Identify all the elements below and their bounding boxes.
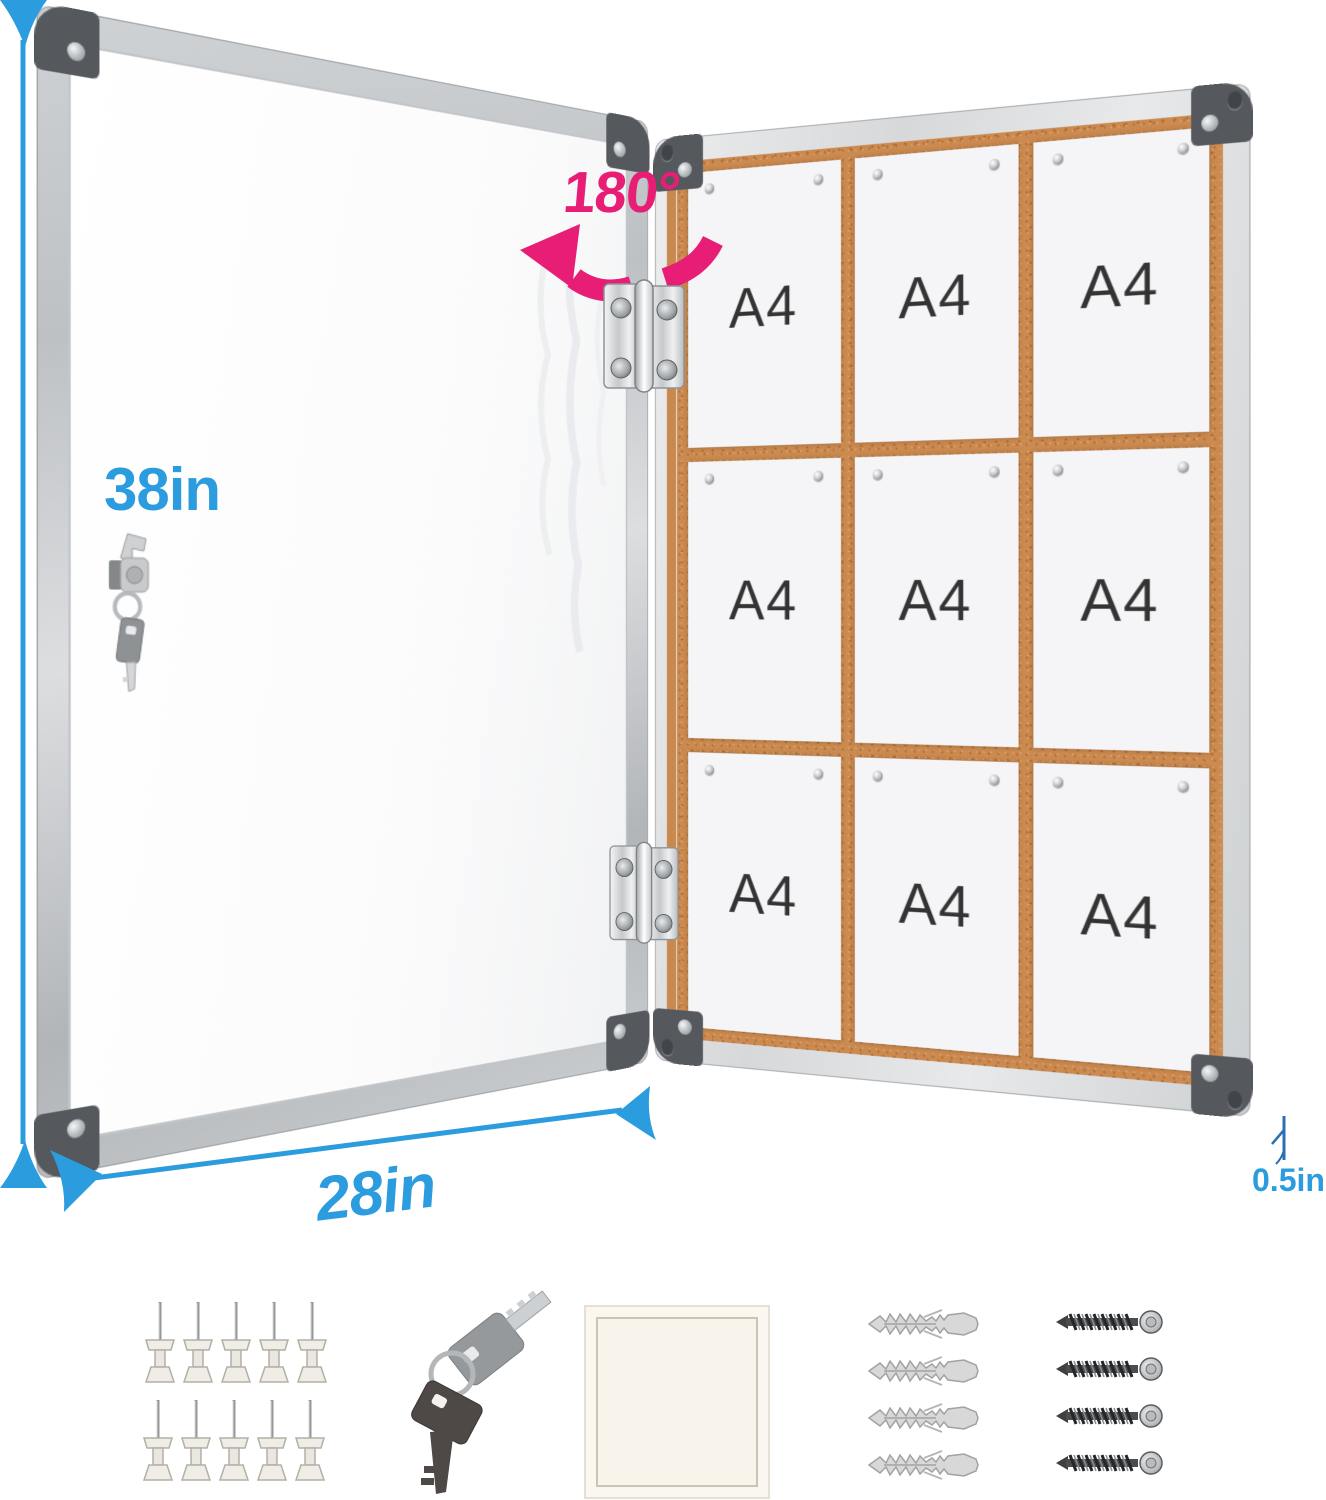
a4-label: A4 xyxy=(1080,247,1160,323)
a4-label: A4 xyxy=(729,859,798,930)
depth-tick xyxy=(1272,1116,1284,1164)
a4-paper: A4 xyxy=(1033,448,1209,753)
corner-cap xyxy=(1191,1054,1253,1120)
a4-paper: A4 xyxy=(688,458,841,742)
rivet-icon xyxy=(614,141,626,158)
a4-label: A4 xyxy=(899,259,973,332)
rotation-label: 180° xyxy=(561,164,682,222)
cork-side-edge xyxy=(667,182,676,1018)
corner-cap xyxy=(34,1104,99,1183)
cork-surface: A4 A4 A4 A4 A4 A4 A4 A4 A4 xyxy=(677,112,1223,1087)
lock-icon xyxy=(104,531,160,697)
bulletin-board: A4 A4 A4 A4 A4 A4 A4 A4 A4 xyxy=(655,83,1251,1117)
rivet-icon xyxy=(614,1023,626,1040)
mount-hole-icon xyxy=(1228,91,1243,110)
a4-paper: A4 xyxy=(688,752,841,1041)
mount-hole-icon xyxy=(1228,1090,1243,1109)
a4-paper: A4 xyxy=(688,160,841,449)
a4-paper: A4 xyxy=(855,453,1019,747)
a4-label: A4 xyxy=(729,567,798,634)
mount-hole-icon xyxy=(661,1039,673,1056)
rivet-icon xyxy=(1201,1064,1218,1082)
mount-hole-icon xyxy=(661,144,673,161)
corner-cap xyxy=(34,1,99,80)
rivet-icon xyxy=(1201,114,1218,132)
a4-label: A4 xyxy=(1080,564,1160,636)
note-pad-icon xyxy=(585,1306,769,1498)
rivet-icon xyxy=(678,1019,692,1035)
depth-label: 0.5in xyxy=(1252,1164,1325,1196)
a4-paper: A4 xyxy=(1033,127,1209,437)
a4-paper: A4 xyxy=(1033,763,1209,1073)
corner-cap xyxy=(606,1010,649,1072)
product-illustration: A4 A4 A4 A4 A4 A4 A4 A4 A4 xyxy=(0,0,1326,1500)
a4-label: A4 xyxy=(729,271,798,342)
rivet-icon xyxy=(67,1118,85,1140)
door xyxy=(37,4,648,1180)
rivet-icon xyxy=(67,41,85,63)
height-label: 38in xyxy=(104,460,220,520)
a4-paper: A4 xyxy=(855,757,1019,1056)
a4-label: A4 xyxy=(899,565,973,634)
corner-cap xyxy=(653,1008,703,1067)
corner-cap xyxy=(1191,81,1253,147)
wall-anchors-icon xyxy=(869,1310,978,1479)
keys-icon xyxy=(409,1282,563,1494)
push-pins-icon xyxy=(144,1302,326,1480)
a4-label: A4 xyxy=(899,868,973,941)
a4-paper: A4 xyxy=(855,144,1019,443)
screws-icon xyxy=(1056,1311,1162,1474)
width-label: 28in xyxy=(312,1155,439,1231)
a4-label: A4 xyxy=(1080,877,1160,953)
